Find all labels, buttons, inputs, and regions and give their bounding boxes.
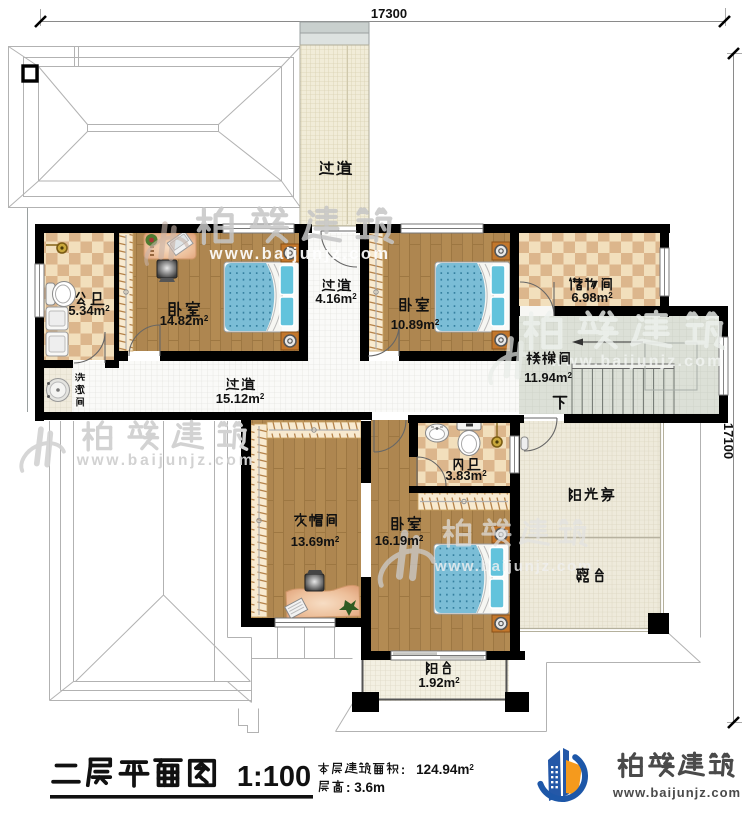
svg-text::: : (401, 762, 405, 777)
svg-text:: 3.6m: : 3.6m (346, 780, 385, 795)
svg-text:5.34m2: 5.34m2 (68, 303, 110, 318)
svg-text:17100: 17100 (721, 423, 736, 459)
svg-text:www.baijunjz.com: www.baijunjz.com (549, 353, 723, 370)
svg-text:13.69m2: 13.69m2 (291, 534, 340, 549)
svg-text:11.94m2: 11.94m2 (524, 370, 572, 385)
svg-text:www.baijunjz.com: www.baijunjz.com (434, 558, 593, 575)
svg-text:124.94m2: 124.94m2 (416, 762, 474, 777)
svg-text:www.baijunjz.com: www.baijunjz.com (209, 245, 391, 263)
svg-text:15.12m2: 15.12m2 (216, 391, 265, 406)
svg-text:17300: 17300 (371, 6, 407, 21)
svg-text:1.92m2: 1.92m2 (418, 675, 460, 690)
svg-text:10.89m2: 10.89m2 (391, 317, 440, 332)
svg-text:3.83m2: 3.83m2 (445, 468, 487, 483)
svg-text:14.82m2: 14.82m2 (160, 313, 209, 328)
svg-text:1:100: 1:100 (237, 761, 311, 793)
svg-text:6.98m2: 6.98m2 (571, 290, 613, 305)
svg-text:www.baijunjz.com: www.baijunjz.com (76, 452, 256, 469)
svg-text:4.16m2: 4.16m2 (315, 291, 357, 306)
svg-text:16.19m2: 16.19m2 (375, 533, 424, 548)
svg-text:www.baijunjz.com: www.baijunjz.com (612, 785, 741, 800)
